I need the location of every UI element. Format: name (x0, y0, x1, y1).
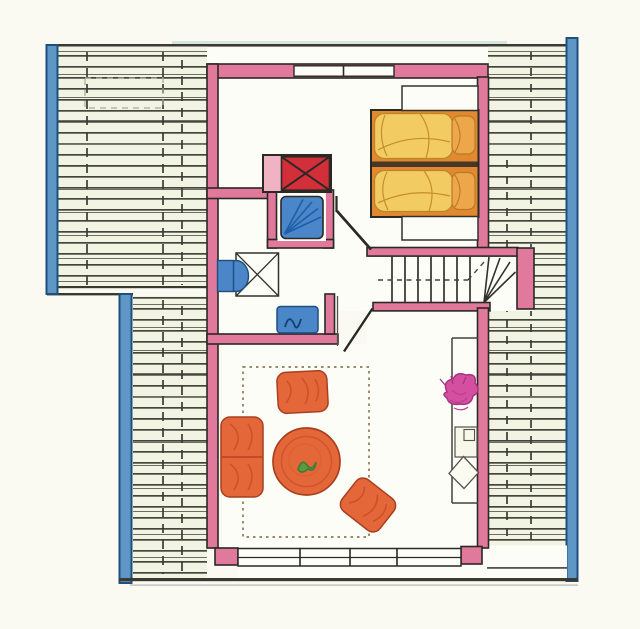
armchair-top (276, 370, 328, 414)
bottom-eave-line (119, 578, 578, 581)
toilet-icon (277, 307, 318, 334)
chimney-icon (263, 155, 331, 192)
shower-icon (278, 193, 327, 241)
edge-beam-right (567, 38, 578, 581)
washbasin-icon (218, 261, 249, 292)
mattress-top (375, 114, 476, 159)
wall-living-right (478, 308, 489, 548)
bottom-eave-line-2 (130, 585, 578, 586)
wall-bathroom-bottom (207, 334, 338, 344)
wall-corner-bottom-left (215, 548, 238, 565)
wall-left (207, 64, 218, 548)
floor-plan-canvas (0, 0, 640, 629)
top-boundary-line (48, 44, 578, 47)
edge-beam-left-lower (120, 294, 132, 583)
pillow (452, 173, 475, 210)
nightstand-top (402, 86, 478, 111)
bed-divider (371, 162, 479, 168)
edge-beam-left-upper (47, 45, 58, 294)
roof-slope-lower-left (133, 296, 207, 578)
roof-slope-upper-left (47, 47, 207, 296)
sofa (221, 417, 263, 497)
round-table (273, 428, 340, 495)
stair-rail-top (367, 248, 518, 257)
stair-rail-bottom (373, 303, 490, 311)
mattress-bottom (375, 171, 476, 212)
pillow (452, 116, 475, 154)
wall-corner-bottom-right (461, 547, 482, 565)
double-bed (371, 110, 479, 217)
nightstand-bottom (402, 217, 478, 241)
wall-door-stub (325, 294, 335, 334)
stair-winder-wall (517, 248, 534, 309)
wall-bath-bedroom-divider (207, 188, 270, 199)
decor-box (455, 427, 477, 457)
floor-plan-page (0, 0, 640, 629)
